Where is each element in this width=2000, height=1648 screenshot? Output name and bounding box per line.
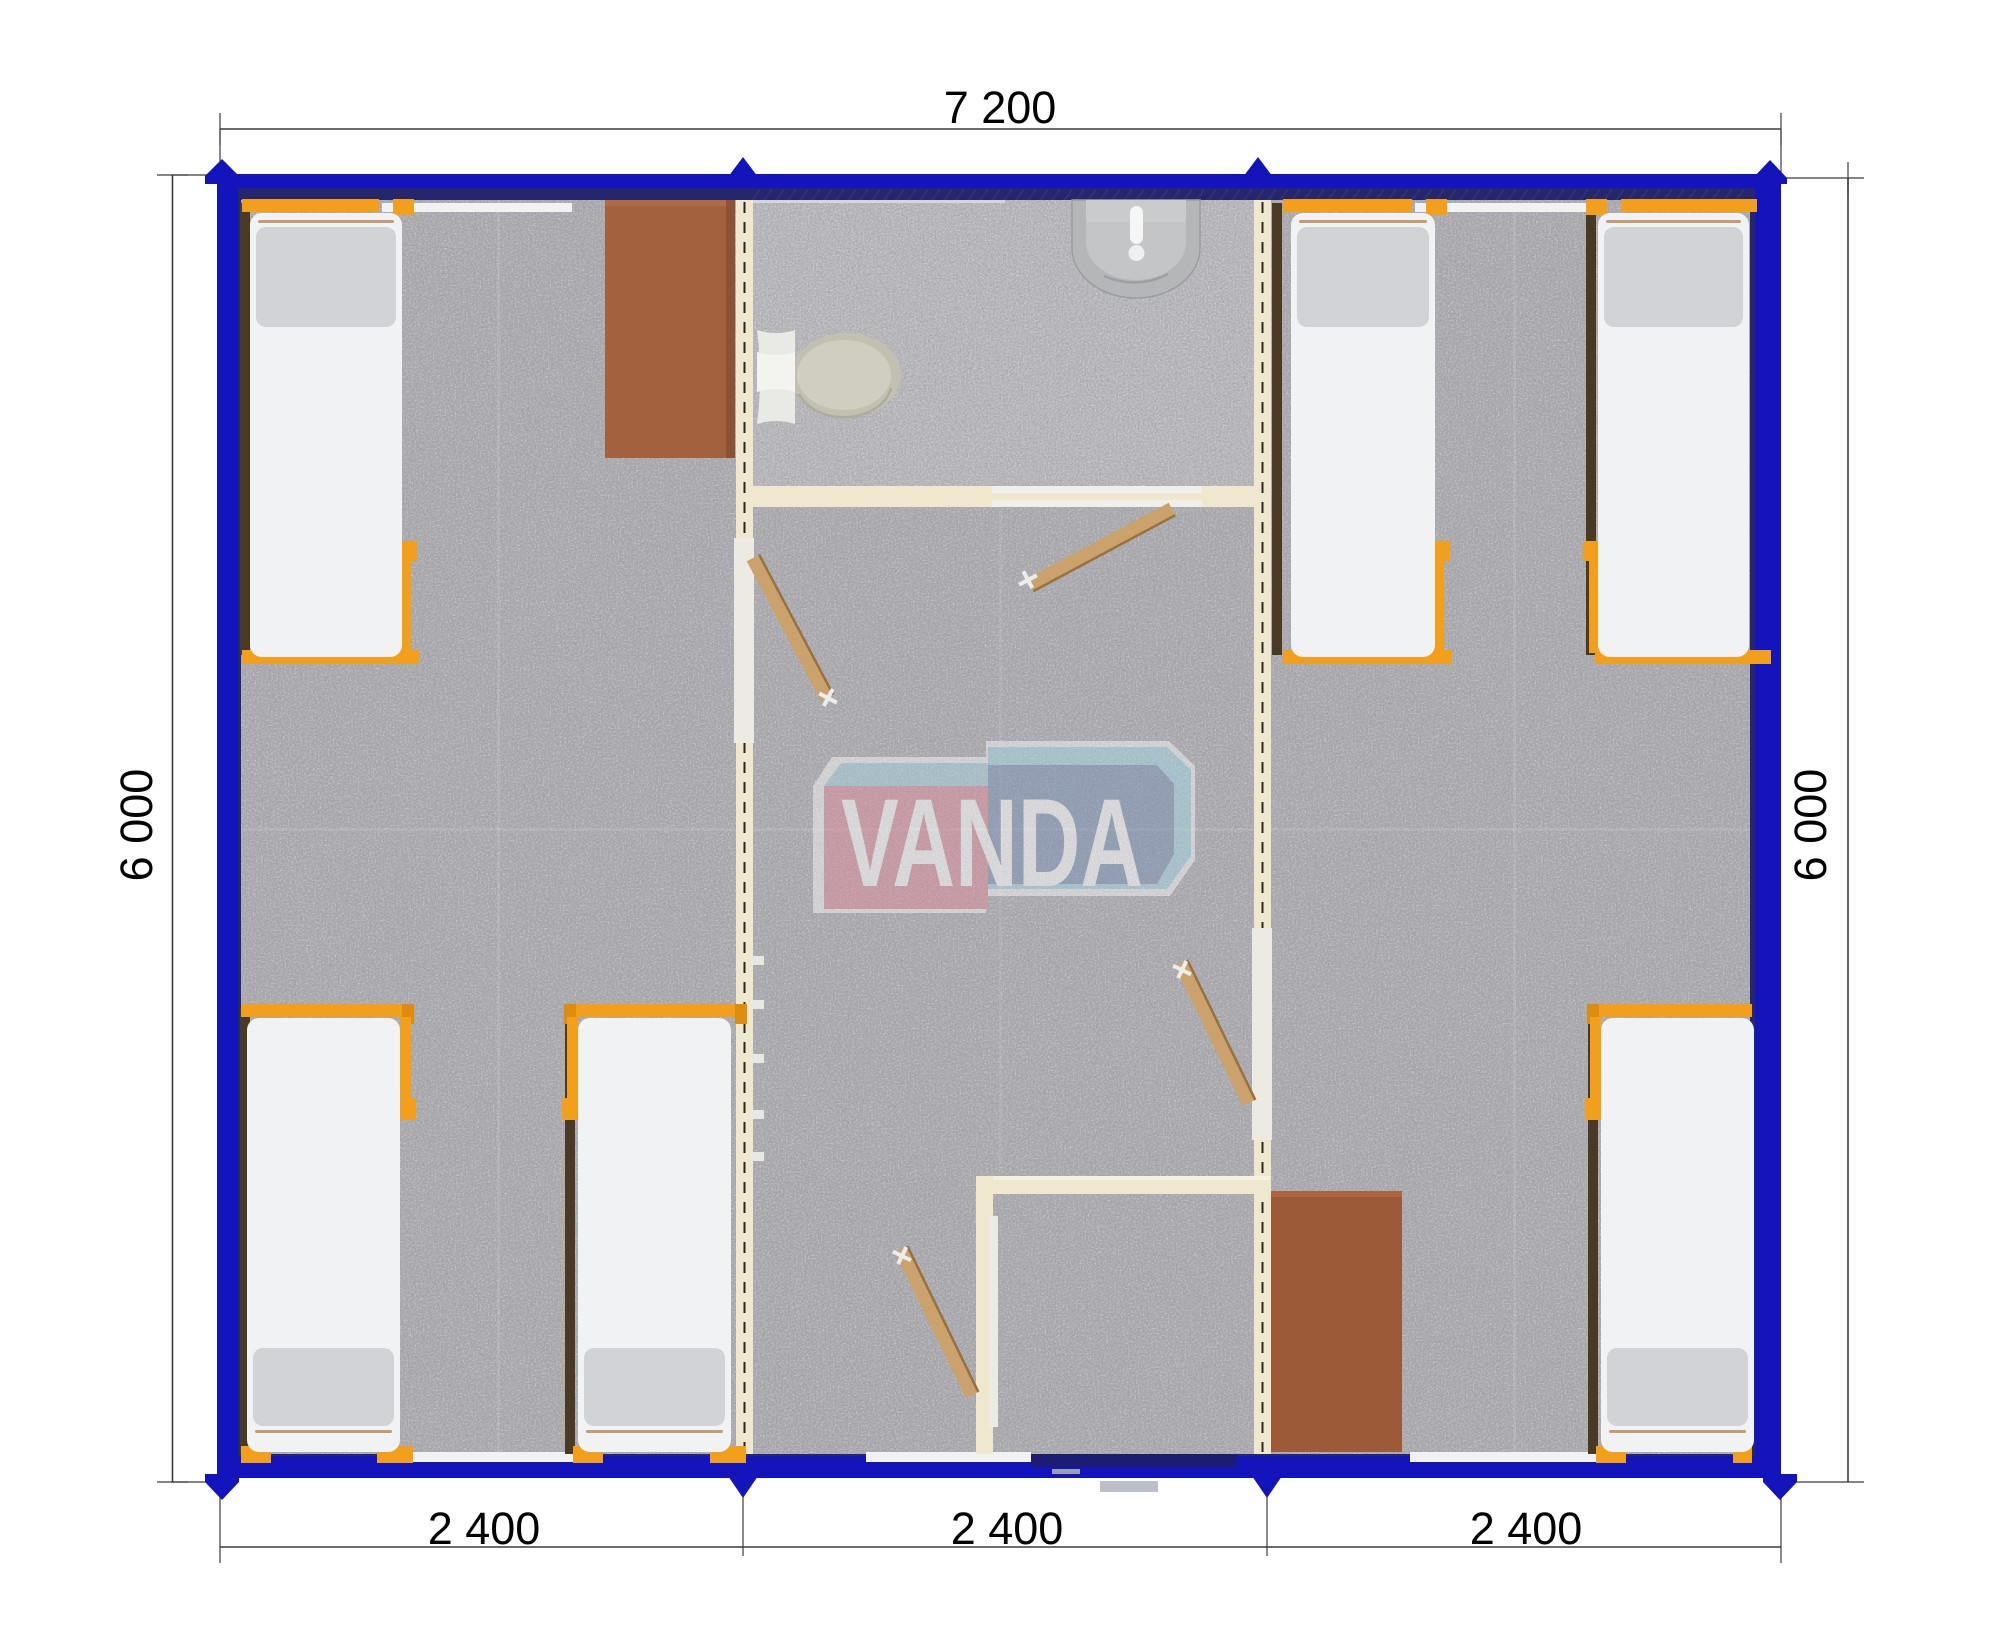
svg-text:6 000: 6 000: [1785, 769, 1836, 882]
svg-text:6 000: 6 000: [111, 769, 162, 882]
svg-text:2 400: 2 400: [428, 1503, 541, 1554]
svg-text:2 400: 2 400: [951, 1503, 1064, 1554]
svg-text:7 200: 7 200: [944, 82, 1057, 133]
svg-text:VANDA: VANDA: [841, 774, 1143, 913]
svg-text:2 400: 2 400: [1470, 1503, 1583, 1554]
